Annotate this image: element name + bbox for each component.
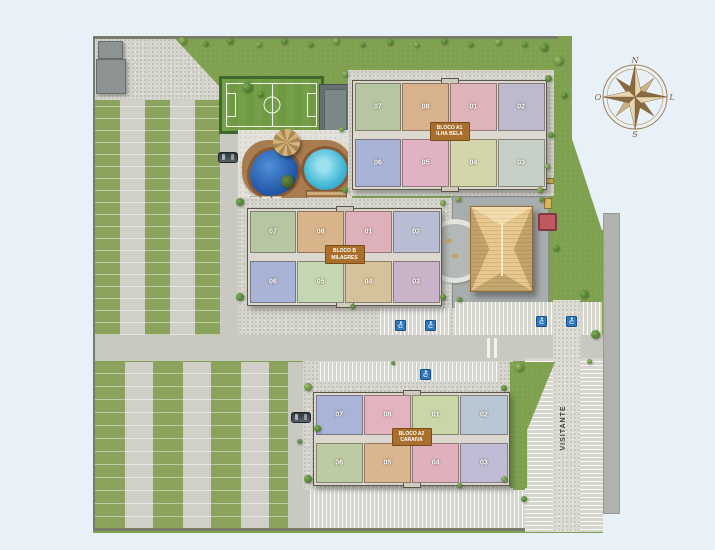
perimeter-road-east (603, 213, 620, 514)
unit-number: 04 (432, 459, 440, 466)
tree-icon (227, 38, 233, 44)
site-plan: VISITANTE 07080102 06050403 BLOCO A1 ILH… (0, 0, 715, 550)
unit-number: 08 (383, 412, 391, 419)
unit-number: 03 (480, 459, 488, 466)
unit-number: 01 (432, 412, 440, 419)
building-bloco-b: 07080102 06050403 BLOCO B MILAGRES (247, 208, 442, 306)
compass-n: N (631, 56, 640, 65)
tree-icon (495, 39, 501, 45)
perimeter-wall-left (93, 38, 95, 530)
tree-icon (342, 187, 348, 193)
tree-icon (360, 42, 365, 47)
unit-number: 07 (374, 103, 382, 110)
apartment-unit-05: 05 (364, 443, 411, 483)
gatehouse-small (98, 41, 123, 59)
tree-icon (308, 42, 313, 47)
tree-icon (281, 38, 287, 44)
tree-icon (591, 330, 600, 339)
perimeter-wall-bottom (93, 528, 525, 531)
tree-icon (545, 164, 550, 169)
accessible-parking-icon (395, 320, 406, 331)
car (291, 412, 311, 423)
tree-icon (554, 56, 563, 65)
accessible-parking-icon (420, 369, 431, 380)
field-goalbox-left (226, 93, 236, 117)
building-bloco-a1: 07080102 06050403 BLOCO A1 ILHA BELA (352, 80, 547, 190)
tree-icon (545, 75, 552, 82)
unit-number: 01 (469, 103, 477, 110)
visitor-road-label: VISITANTE (560, 393, 572, 463)
apartment-unit-06: 06 (250, 261, 297, 303)
roof-ridge (501, 222, 503, 276)
tree-icon (440, 200, 446, 206)
unit-number: 08 (422, 103, 430, 110)
label-line: CARAIVA (394, 437, 430, 443)
unit-number: 04 (364, 278, 372, 285)
building-label-a1: BLOCO A1 ILHA BELA (430, 122, 470, 141)
tree-icon (455, 196, 461, 202)
parking-stalls-a2-north (320, 362, 500, 382)
tree-icon (501, 476, 507, 482)
unit-number: 05 (383, 459, 391, 466)
parking-grass-left (95, 100, 222, 335)
tree-icon (304, 475, 312, 483)
unit-row: 06050403 (354, 139, 545, 187)
tree-icon (501, 385, 507, 391)
apartment-unit-03: 03 (498, 139, 545, 187)
compass-s: S (632, 130, 638, 139)
visitor-stalls-right (580, 358, 603, 532)
apartment-unit-07: 07 (355, 83, 402, 131)
unit-number: 06 (374, 160, 382, 167)
apartment-unit-05: 05 (402, 139, 449, 187)
apartment-unit-03: 03 (393, 261, 440, 303)
tree-icon (391, 361, 395, 365)
tree-icon (179, 37, 186, 44)
building-label-a2: BLOCO A2 CARAIVA (392, 428, 432, 447)
unit-number: 07 (335, 412, 343, 419)
tree-icon (548, 132, 554, 138)
tree-icon (350, 304, 355, 309)
soccer-field (219, 76, 324, 134)
tree-icon (539, 197, 544, 202)
tree-icon (236, 198, 244, 206)
unit-number: 07 (269, 229, 277, 236)
tree-icon (457, 483, 462, 488)
clubhouse-roof (470, 206, 533, 292)
unit-number: 05 (422, 160, 430, 167)
tree-icon (256, 42, 261, 47)
accessible-parking-icon (425, 320, 436, 331)
tree-icon (580, 290, 588, 298)
gatehouse-main (96, 59, 126, 94)
poolside-tree (281, 175, 294, 188)
plaza-bench (452, 254, 458, 258)
tree-icon (457, 297, 462, 302)
tree-icon (537, 187, 543, 193)
unit-number: 06 (335, 459, 343, 466)
accessible-parking-icon (566, 316, 577, 327)
unit-number: 05 (317, 278, 325, 285)
apartment-unit-04: 04 (412, 443, 459, 483)
unit-number: 08 (317, 229, 325, 236)
parking-stalls-a2-south (310, 490, 555, 530)
apartment-unit-05: 05 (297, 261, 344, 303)
swimming-pool-round (301, 146, 350, 193)
tree-icon (342, 71, 348, 77)
tree-icon (257, 91, 263, 97)
field-center-circle (263, 97, 280, 114)
unit-number: 06 (269, 278, 277, 285)
unit-number: 02 (480, 412, 488, 419)
tree-icon (387, 39, 393, 45)
apartment-unit-06: 06 (316, 443, 363, 483)
unit-row: 06050403 (249, 261, 440, 303)
playground (538, 213, 557, 231)
accessible-parking-icon (536, 316, 547, 327)
apartment-unit-04: 04 (450, 139, 497, 187)
tree-icon (203, 41, 208, 46)
label-line: ILHA BELA (432, 131, 468, 137)
tree-icon (236, 293, 244, 301)
tree-icon (333, 38, 339, 44)
unit-number: 02 (517, 103, 525, 110)
compass-w: O (595, 93, 602, 102)
unit-number: 01 (364, 229, 372, 236)
tree-icon (441, 38, 447, 44)
unit-number: 02 (412, 229, 420, 236)
tree-icon (414, 42, 419, 47)
tree-icon (553, 245, 559, 251)
compass-e: L (668, 93, 674, 102)
unit-number: 03 (517, 160, 525, 167)
apartment-unit-07: 07 (250, 211, 297, 253)
tree-icon (540, 43, 548, 51)
tree-icon (521, 496, 527, 502)
perimeter-wall-top (93, 36, 558, 39)
parking-grass-bottom (95, 362, 288, 530)
unit-number: 04 (469, 160, 477, 167)
plaza-bench (446, 239, 452, 243)
palapa-umbrella (273, 129, 300, 156)
tree-icon (297, 439, 302, 444)
label-line: MILAGRES (327, 255, 363, 261)
apartment-unit-02: 02 (393, 211, 440, 253)
tree-icon (515, 363, 523, 371)
tree-icon (304, 383, 312, 391)
car (218, 152, 238, 163)
tree-icon (339, 127, 344, 132)
building-label-b: BLOCO B MILAGRES (325, 245, 365, 264)
tree-icon (561, 92, 567, 98)
tree-icon (440, 294, 446, 300)
field-goalbox-right (307, 93, 317, 117)
apartment-unit-06: 06 (355, 139, 402, 187)
apartment-unit-07: 07 (316, 395, 363, 435)
speed-bump (487, 338, 500, 358)
building-bloco-a2: 07080102 06050403 BLOCO A2 CARAIVA (313, 392, 510, 486)
tree-icon (314, 425, 321, 432)
parking-stalls-mid (380, 308, 450, 335)
gym-roof (324, 89, 347, 136)
compass-rose: N L S O (593, 55, 677, 139)
tree-icon (587, 359, 592, 364)
apartment-unit-04: 04 (345, 261, 392, 303)
tree-icon (468, 42, 473, 47)
tree-icon (522, 42, 527, 47)
apartment-unit-02: 02 (498, 83, 545, 131)
tree-icon (242, 82, 252, 92)
bench (544, 198, 552, 209)
apartment-unit-02: 02 (460, 395, 507, 435)
unit-number: 03 (412, 278, 420, 285)
unit-row: 06050403 (315, 443, 508, 483)
